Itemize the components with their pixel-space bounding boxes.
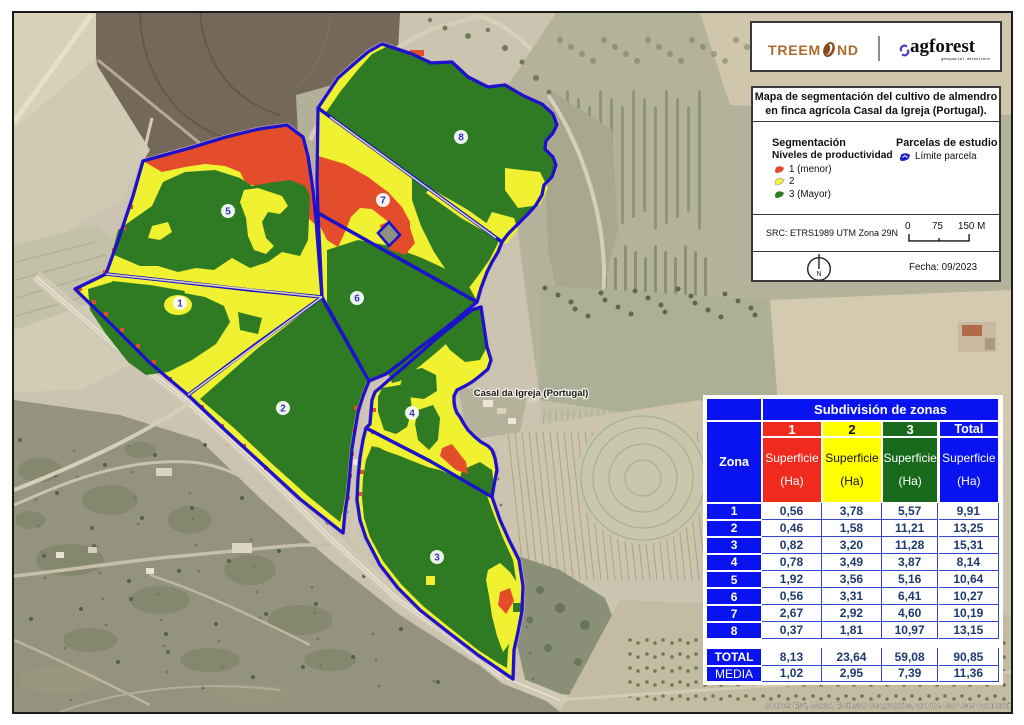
svg-text:Source: Esri, Maxar, Earthstar: Source: Esri, Maxar, Earthstar Geographi… [765,701,1011,710]
svg-text:2: 2 [280,404,286,415]
svg-text:Casal da Igreja (Portugal): Casal da Igreja (Portugal) [474,388,589,399]
svg-text:7: 7 [380,196,386,207]
svg-text:4: 4 [409,409,415,420]
svg-text:3: 3 [434,553,440,564]
svg-text:5: 5 [225,207,231,218]
svg-text:N: N [816,271,821,278]
svg-text:6: 6 [354,294,360,305]
svg-text:8: 8 [458,133,464,144]
svg-text:1: 1 [177,299,183,310]
